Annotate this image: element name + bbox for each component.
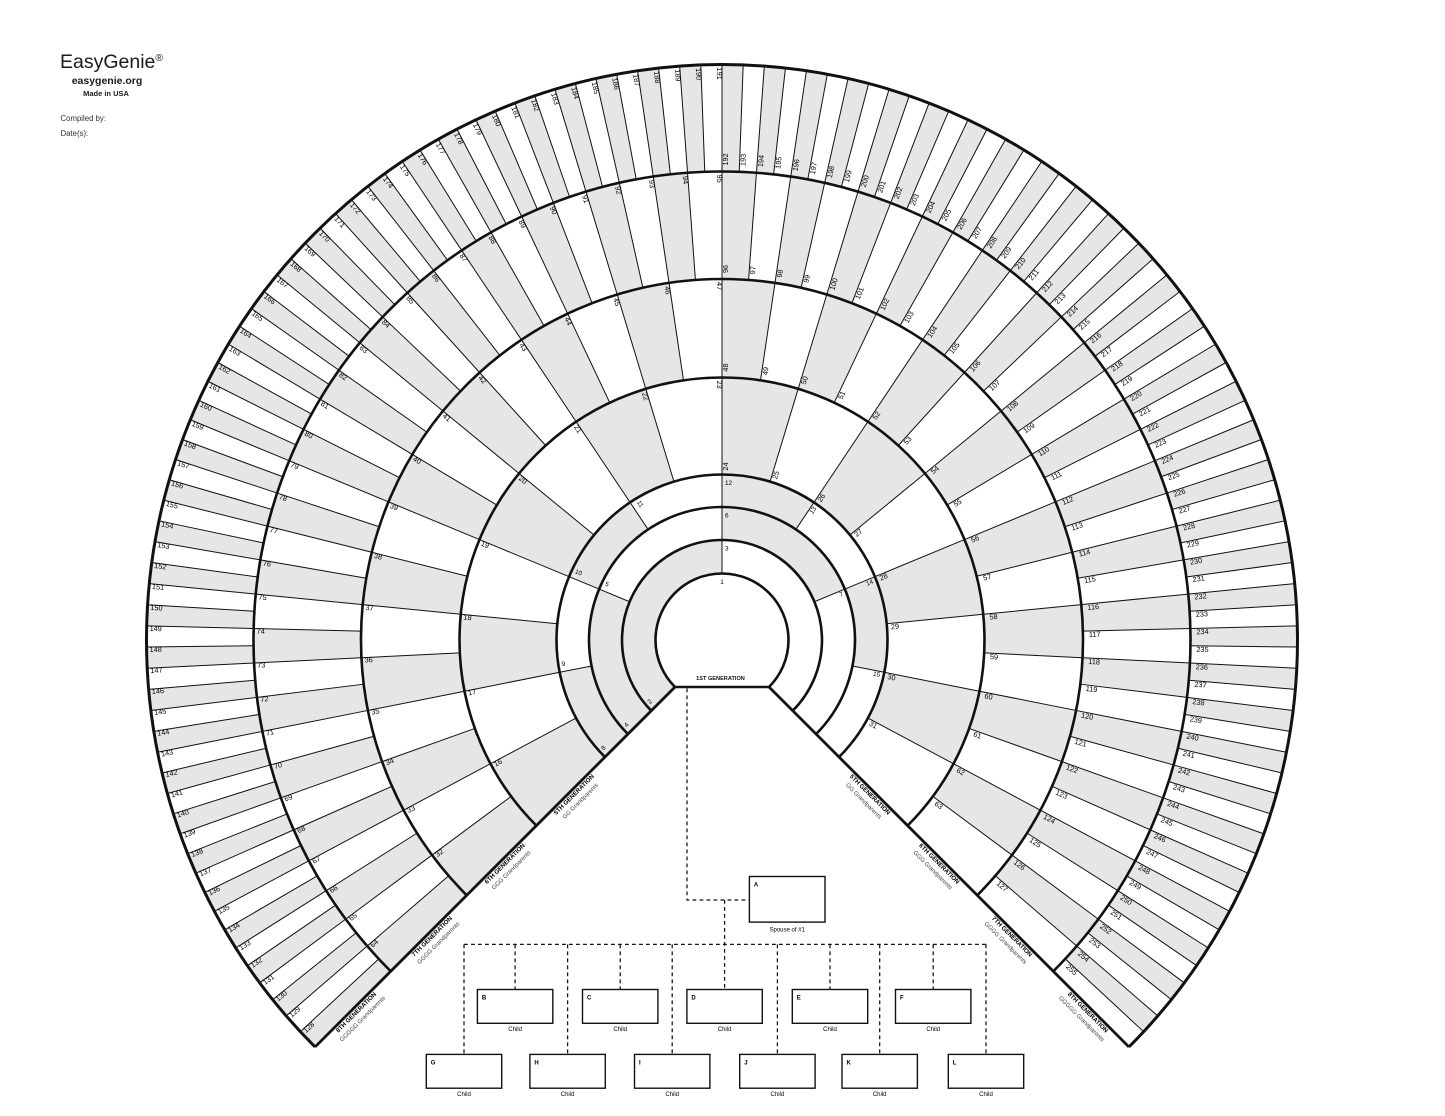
svg-text:149: 149: [150, 624, 162, 633]
svg-text:95: 95: [715, 175, 724, 183]
svg-text:59: 59: [990, 652, 999, 661]
svg-text:Child: Child: [718, 1027, 732, 1033]
svg-text:232: 232: [1194, 591, 1207, 601]
svg-text:145: 145: [154, 707, 167, 717]
svg-text:194: 194: [756, 155, 766, 168]
svg-text:152: 152: [154, 561, 167, 572]
svg-text:46: 46: [663, 286, 673, 295]
svg-text:A: A: [754, 883, 759, 889]
svg-text:Child: Child: [665, 1092, 679, 1098]
svg-text:237: 237: [1194, 680, 1207, 690]
svg-text:98: 98: [775, 269, 785, 278]
svg-text:58: 58: [989, 612, 998, 622]
svg-text:195: 195: [773, 156, 783, 169]
svg-text:12: 12: [725, 480, 733, 487]
svg-text:6: 6: [725, 513, 729, 520]
svg-text:30: 30: [887, 672, 897, 682]
svg-text:150: 150: [150, 603, 163, 613]
svg-text:C: C: [587, 996, 592, 1002]
svg-text:Date(s):: Date(s):: [61, 129, 89, 138]
svg-text:35: 35: [371, 706, 381, 716]
svg-text:151: 151: [152, 582, 165, 592]
svg-text:E: E: [797, 996, 801, 1002]
svg-text:EasyGenie®: EasyGenie®: [60, 51, 163, 73]
svg-text:49: 49: [760, 366, 770, 375]
svg-text:239: 239: [1189, 714, 1202, 725]
svg-text:47: 47: [715, 282, 724, 290]
svg-text:Child: Child: [613, 1027, 627, 1033]
svg-text:Made in USA: Made in USA: [83, 89, 129, 98]
svg-text:76: 76: [262, 558, 272, 568]
svg-text:234: 234: [1196, 627, 1208, 636]
svg-text:K: K: [847, 1060, 852, 1066]
svg-text:Child: Child: [873, 1092, 887, 1098]
svg-text:144: 144: [156, 727, 169, 738]
svg-text:189: 189: [673, 69, 683, 82]
svg-text:94: 94: [681, 176, 691, 185]
svg-text:Child: Child: [823, 1027, 837, 1033]
svg-text:72: 72: [260, 694, 269, 704]
svg-text:17: 17: [467, 687, 477, 697]
svg-text:H: H: [534, 1060, 538, 1066]
svg-text:Child: Child: [926, 1027, 940, 1033]
svg-text:191: 191: [715, 68, 724, 80]
svg-text:236: 236: [1196, 662, 1209, 672]
svg-text:24: 24: [721, 462, 730, 470]
svg-text:187: 187: [631, 73, 642, 86]
svg-text:48: 48: [721, 363, 730, 371]
svg-text:238: 238: [1192, 697, 1205, 707]
svg-text:193: 193: [738, 154, 747, 167]
svg-text:J: J: [744, 1060, 747, 1066]
svg-text:71: 71: [265, 727, 275, 737]
svg-text:29: 29: [890, 622, 899, 632]
svg-text:Child: Child: [561, 1092, 575, 1098]
svg-text:Child: Child: [457, 1092, 471, 1098]
svg-text:188: 188: [652, 71, 662, 84]
svg-text:73: 73: [257, 660, 266, 669]
svg-text:97: 97: [748, 266, 758, 275]
svg-text:D: D: [691, 996, 696, 1002]
svg-text:233: 233: [1196, 609, 1209, 619]
svg-text:36: 36: [364, 655, 373, 664]
svg-text:L: L: [953, 1060, 957, 1066]
svg-text:196: 196: [791, 158, 802, 171]
svg-text:190: 190: [694, 68, 703, 81]
svg-text:192: 192: [721, 153, 730, 165]
svg-text:1ST GENERATION: 1ST GENERATION: [696, 676, 745, 682]
svg-text:Child: Child: [508, 1027, 522, 1033]
svg-text:231: 231: [1192, 574, 1205, 585]
svg-text:60: 60: [984, 691, 994, 701]
svg-text:B: B: [482, 996, 487, 1002]
svg-text:Child: Child: [979, 1092, 993, 1098]
svg-text:23: 23: [715, 381, 724, 389]
svg-text:18: 18: [463, 613, 472, 623]
svg-text:93: 93: [647, 179, 657, 188]
svg-text:Spouse of #1: Spouse of #1: [770, 928, 806, 934]
svg-text:Compiled by:: Compiled by:: [61, 114, 107, 123]
svg-text:235: 235: [1196, 645, 1208, 654]
svg-text:37: 37: [365, 603, 374, 613]
svg-text:75: 75: [258, 592, 267, 602]
svg-text:G: G: [431, 1060, 436, 1066]
svg-text:118: 118: [1088, 657, 1100, 667]
svg-text:117: 117: [1089, 630, 1101, 639]
svg-text:146: 146: [151, 686, 164, 696]
svg-text:F: F: [900, 996, 904, 1002]
svg-text:96: 96: [721, 265, 730, 273]
svg-text:easygenie.org: easygenie.org: [72, 75, 143, 87]
svg-text:147: 147: [150, 665, 163, 675]
svg-text:1: 1: [720, 579, 724, 586]
svg-text:74: 74: [256, 627, 264, 636]
svg-text:Child: Child: [771, 1092, 785, 1098]
svg-text:148: 148: [150, 645, 162, 654]
svg-text:116: 116: [1087, 602, 1099, 612]
svg-text:3: 3: [725, 546, 729, 553]
svg-text:119: 119: [1085, 684, 1098, 694]
